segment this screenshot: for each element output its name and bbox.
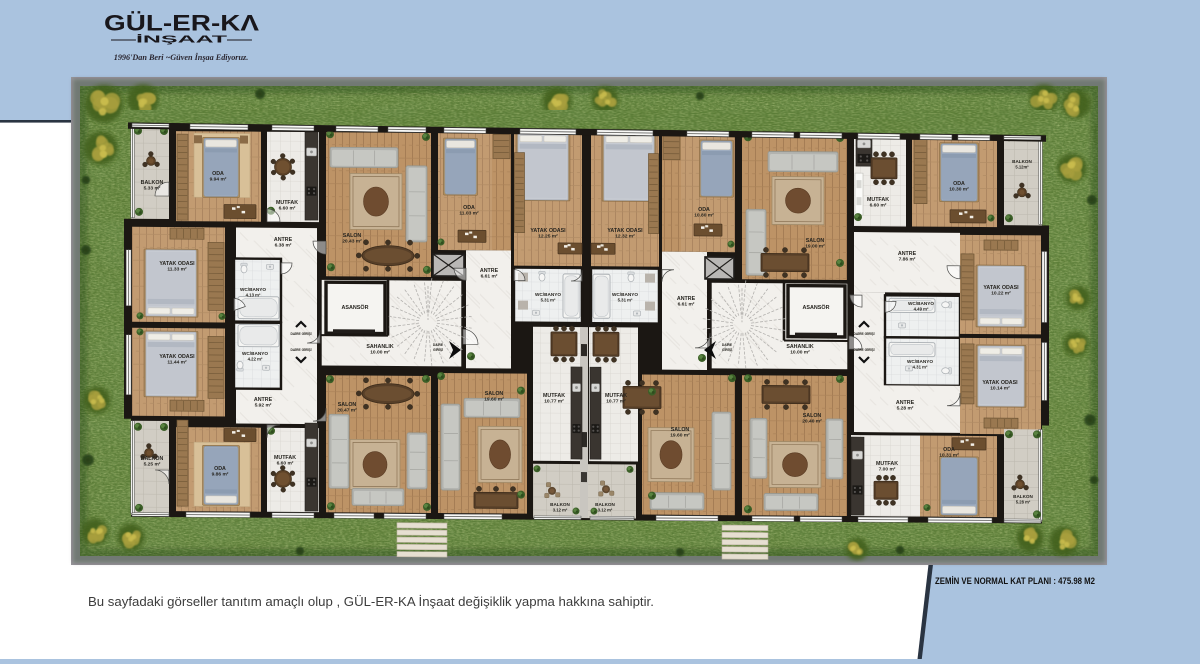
svg-text:ODA: ODA xyxy=(463,205,475,211)
svg-text:12.32 m²: 12.32 m² xyxy=(615,234,635,240)
svg-text:10.00 m²: 10.00 m² xyxy=(790,350,810,356)
svg-text:DAİRE GİRİŞİ: DAİRE GİRİŞİ xyxy=(853,348,874,352)
svg-text:BALKON: BALKON xyxy=(1013,494,1033,499)
svg-text:ANTRE: ANTRE xyxy=(274,237,293,243)
svg-text:9.94 m²: 9.94 m² xyxy=(210,177,227,183)
svg-text:SALON: SALON xyxy=(671,427,690,433)
svg-text:5.28 m²: 5.28 m² xyxy=(897,406,914,412)
svg-text:6.60 m²: 6.60 m² xyxy=(277,461,294,467)
svg-text:20.40 m²: 20.40 m² xyxy=(802,419,822,425)
svg-text:10.77 m²: 10.77 m² xyxy=(606,399,626,405)
svg-text:ANTRE: ANTRE xyxy=(898,251,917,257)
svg-text:4.31 m²: 4.31 m² xyxy=(913,365,928,370)
svg-text:10.31 m²: 10.31 m² xyxy=(939,453,959,459)
svg-text:7.00 m²: 7.00 m² xyxy=(879,467,896,473)
svg-text:11.03 m²: 11.03 m² xyxy=(459,211,479,217)
svg-text:20.47 m²: 20.47 m² xyxy=(337,408,357,414)
svg-text:ASANSÖR: ASANSÖR xyxy=(342,304,369,311)
svg-text:MUTFAK: MUTFAK xyxy=(605,393,627,399)
svg-text:SALON: SALON xyxy=(338,402,357,408)
svg-text:SALON: SALON xyxy=(806,238,825,244)
svg-text:6.60 m²: 6.60 m² xyxy=(279,206,296,212)
svg-text:DAİRE: DAİRE xyxy=(433,343,444,347)
svg-text:6.38 m²: 6.38 m² xyxy=(275,243,292,249)
svg-text:10.80 m²: 10.80 m² xyxy=(694,213,714,219)
svg-text:5.25 m²: 5.25 m² xyxy=(144,462,161,468)
svg-text:Bu sayfadaki görseller tanıtım: Bu sayfadaki görseller tanıtım amaçlı ol… xyxy=(88,594,654,609)
svg-text:DAİRE GİRİŞİ: DAİRE GİRİŞİ xyxy=(290,348,311,352)
svg-text:5.92 m²: 5.92 m² xyxy=(255,403,272,409)
svg-text:4.49 m²: 4.49 m² xyxy=(914,307,929,312)
svg-text:SALON: SALON xyxy=(485,391,504,397)
svg-text:5.31 m²: 5.31 m² xyxy=(541,298,556,303)
svg-text:BALKON: BALKON xyxy=(1012,159,1032,164)
svg-text:WC/BANYO: WC/BANYO xyxy=(535,292,561,297)
svg-text:6.61 m²: 6.61 m² xyxy=(678,302,695,308)
svg-text:11.33 m²: 11.33 m² xyxy=(167,267,187,273)
svg-text:5.33 m²: 5.33 m² xyxy=(144,186,161,192)
svg-text:YATAK ODASI: YATAK ODASI xyxy=(983,285,1019,291)
svg-text:MUTFAK: MUTFAK xyxy=(543,393,565,399)
svg-text:4.13 m²: 4.13 m² xyxy=(246,293,261,298)
svg-text:ANTRE: ANTRE xyxy=(677,296,696,302)
svg-text:5.12m²: 5.12m² xyxy=(1015,165,1029,170)
svg-text:10.22 m²: 10.22 m² xyxy=(991,291,1011,297)
svg-text:GİRİŞİ: GİRİŞİ xyxy=(433,348,443,352)
svg-text:GÜL-ER-KΛ: GÜL-ER-KΛ xyxy=(104,11,259,36)
svg-text:WC/BANYO: WC/BANYO xyxy=(242,351,268,356)
svg-text:GİRİŞİ: GİRİŞİ xyxy=(722,348,732,352)
svg-text:BALKON: BALKON xyxy=(141,180,164,186)
svg-text:DAİRE: DAİRE xyxy=(722,343,733,347)
svg-text:YATAK ODASI: YATAK ODASI xyxy=(159,261,195,267)
svg-text:ODA: ODA xyxy=(214,466,226,472)
svg-text:WC/BANYO: WC/BANYO xyxy=(908,301,934,306)
svg-text:ODA: ODA xyxy=(212,171,224,177)
svg-text:SALON: SALON xyxy=(803,413,822,419)
svg-text:SALON: SALON xyxy=(343,233,362,239)
svg-text:3.12 m²: 3.12 m² xyxy=(553,508,568,513)
svg-text:BALKON: BALKON xyxy=(141,456,164,462)
svg-text:MUTFAK: MUTFAK xyxy=(274,455,296,461)
svg-text:YATAK ODASI: YATAK ODASI xyxy=(982,380,1018,386)
svg-text:ANTRE: ANTRE xyxy=(254,397,273,403)
svg-text:4.22 m²: 4.22 m² xyxy=(248,357,263,362)
svg-text:MUTFAK: MUTFAK xyxy=(276,200,298,206)
svg-text:5.28 m²: 5.28 m² xyxy=(1016,500,1031,505)
svg-text:10.14 m²: 10.14 m² xyxy=(990,386,1010,392)
svg-text:DAİRE GİRİŞİ: DAİRE GİRİŞİ xyxy=(290,332,311,336)
svg-text:20.43 m²: 20.43 m² xyxy=(342,239,362,245)
svg-text:10.00 m²: 10.00 m² xyxy=(370,350,390,356)
svg-text:6.60 m²: 6.60 m² xyxy=(870,203,887,209)
svg-text:9.86 m²: 9.86 m² xyxy=(212,472,229,478)
svg-text:ANTRE: ANTRE xyxy=(480,268,499,274)
svg-text:ODA: ODA xyxy=(698,207,710,213)
svg-text:19.60 m²: 19.60 m² xyxy=(670,433,690,439)
svg-text:BALKON: BALKON xyxy=(550,502,570,507)
svg-text:6.61 m²: 6.61 m² xyxy=(481,274,498,280)
svg-text:3.12 m²: 3.12 m² xyxy=(598,508,613,513)
svg-text:5.31 m²: 5.31 m² xyxy=(618,298,633,303)
svg-text:MUTFAK: MUTFAK xyxy=(867,197,889,203)
svg-text:ODA: ODA xyxy=(943,447,955,453)
svg-text:SAHANLIK: SAHANLIK xyxy=(366,344,394,350)
svg-text:10.77 m²: 10.77 m² xyxy=(544,399,564,405)
svg-text:10.30 m²: 10.30 m² xyxy=(949,187,969,193)
svg-text:WC/BANYO: WC/BANYO xyxy=(907,359,933,364)
svg-text:12.25 m²: 12.25 m² xyxy=(538,234,558,240)
svg-text:ZEMİN VE NORMAL KAT PLANI : 47: ZEMİN VE NORMAL KAT PLANI : 475.98 M2 xyxy=(935,576,1095,586)
svg-text:1996'Dan Beri ~Güven İnşaa Edi: 1996'Dan Beri ~Güven İnşaa Ediyoruz. xyxy=(114,52,249,62)
svg-text:BALKON: BALKON xyxy=(595,502,615,507)
svg-text:YATAK ODASI: YATAK ODASI xyxy=(159,354,195,360)
svg-text:YATAK ODASI: YATAK ODASI xyxy=(607,228,643,234)
svg-text:ASANSÖR: ASANSÖR xyxy=(803,304,830,311)
svg-text:DAİRE GİRİŞİ: DAİRE GİRİŞİ xyxy=(853,332,874,336)
svg-text:MUTFAK: MUTFAK xyxy=(876,461,898,467)
svg-text:11.44 m²: 11.44 m² xyxy=(167,360,187,366)
svg-text:19.00 m²: 19.00 m² xyxy=(805,244,825,250)
svg-text:—İNŞAAT—: —İNŞAAT— xyxy=(111,33,252,46)
svg-text:ODA: ODA xyxy=(953,181,965,187)
svg-text:SAHANLIK: SAHANLIK xyxy=(786,344,814,350)
svg-text:ANTRE: ANTRE xyxy=(896,400,915,406)
svg-text:YATAK ODASI: YATAK ODASI xyxy=(530,228,566,234)
svg-text:WC/BANYO: WC/BANYO xyxy=(612,292,638,297)
svg-text:19.60 m²: 19.60 m² xyxy=(484,397,504,403)
svg-text:7.86 m²: 7.86 m² xyxy=(899,257,916,263)
svg-text:WC/BANYO: WC/BANYO xyxy=(240,287,266,292)
